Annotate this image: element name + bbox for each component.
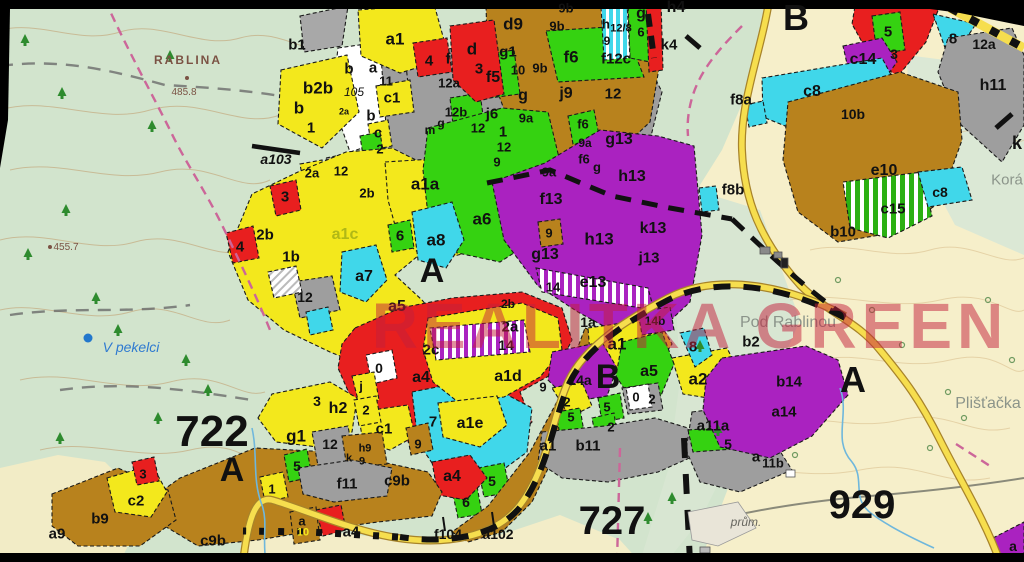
spring-dot	[84, 334, 93, 343]
map-canvas	[0, 0, 1024, 562]
map-viewport: b1b2bb1b105a11c1bc22aa1032a12a14fd312ad9…	[0, 0, 1024, 562]
